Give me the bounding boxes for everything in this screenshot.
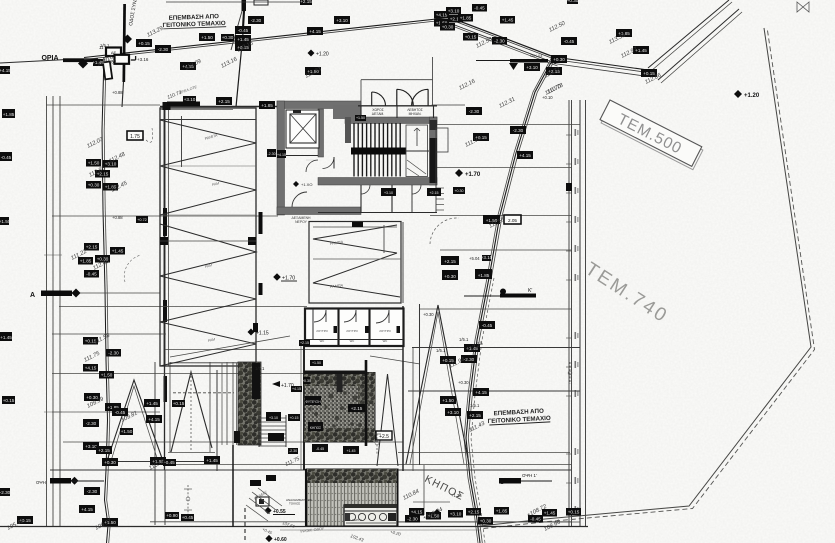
svg-text:1/5.1: 1/5.1	[255, 366, 265, 371]
svg-text:1/5.1: 1/5.1	[459, 337, 469, 342]
svg-text:+3.16: +3.16	[137, 57, 149, 62]
svg-text:+0.15: +0.15	[173, 401, 185, 406]
svg-text:-2.30: -2.30	[0, 490, 11, 495]
svg-text:+1.45: +1.45	[544, 511, 556, 516]
svg-text:+0.45: +0.45	[182, 515, 194, 520]
svg-text:Κ': Κ'	[528, 288, 532, 294]
svg-text:A: A	[30, 292, 35, 299]
svg-text:ΝΕΡΟΥ: ΝΕΡΟΥ	[295, 220, 307, 224]
svg-text:ΛΟΥΤΡΟ: ΛΟΥΤΡΟ	[316, 329, 328, 333]
svg-text:+2.15: +2.15	[351, 406, 363, 411]
svg-text:+1.70: +1.70	[465, 172, 481, 178]
svg-text:+0.30: +0.30	[553, 57, 565, 62]
svg-text:+1.45: +1.45	[112, 249, 124, 254]
svg-text:+1.15: +1.15	[256, 331, 269, 337]
svg-text:+0.30: +0.30	[454, 189, 463, 193]
svg-text:+0.15: +0.15	[568, 510, 580, 515]
svg-text:+2.15: +2.15	[444, 259, 456, 264]
svg-text:+3.10: +3.10	[85, 444, 97, 449]
svg-text:+4.15: +4.15	[292, 387, 301, 391]
svg-text:-0.45: -0.45	[164, 460, 175, 465]
svg-text:ΟΨΗ 1': ΟΨΗ 1'	[522, 473, 537, 478]
svg-text:+0.30: +0.30	[444, 274, 456, 279]
svg-text:+1.50: +1.50	[201, 35, 213, 40]
svg-text:+1.85: +1.85	[478, 273, 490, 278]
svg-text:-0.45: -0.45	[530, 517, 541, 522]
svg-text:-2.30: -2.30	[87, 489, 98, 494]
svg-text:+1.ΧΟ: +1.ΧΟ	[301, 182, 312, 187]
svg-text:+0.88: +0.88	[112, 90, 123, 95]
svg-text:+2.15: +2.15	[429, 191, 438, 195]
svg-text:+1.50: +1.50	[442, 398, 454, 403]
svg-text:ΛΟΥΤΡΟ: ΛΟΥΤΡΟ	[346, 329, 358, 333]
svg-text:+0.15: +0.15	[289, 416, 298, 420]
svg-text:+1.85: +1.85	[460, 16, 472, 21]
svg-text:+0.30: +0.30	[302, 379, 311, 383]
svg-text:ΟΨΗ: ΟΨΗ	[36, 480, 46, 485]
svg-text:2.05: 2.05	[508, 218, 517, 223]
svg-text:+3.10: +3.10	[447, 410, 459, 415]
svg-text:+0.30: +0.30	[442, 25, 454, 30]
svg-text:+1.45: +1.45	[146, 401, 158, 406]
svg-text:+3.10: +3.10	[450, 512, 462, 517]
svg-text:+1.50: +1.50	[312, 361, 321, 365]
svg-text:+2.5: +2.5	[379, 434, 389, 440]
svg-text:+4.15: +4.15	[148, 417, 160, 422]
svg-text:-2.30: -2.30	[108, 351, 119, 356]
svg-text:+4.15: +4.15	[436, 13, 448, 18]
svg-text:-0.45: -0.45	[474, 6, 485, 11]
svg-text:-0.45: -0.45	[86, 272, 97, 277]
svg-text:+3.10: +3.10	[184, 97, 196, 102]
svg-text:ΠΕΡΓΚ: ΠΕΡΓΚ	[352, 518, 363, 522]
svg-text:-2.30: -2.30	[267, 152, 275, 156]
svg-text:OPIA: OPIA	[41, 55, 58, 62]
svg-text:+0.30: +0.30	[480, 519, 492, 524]
svg-text:ΔΕΞΑΜ.: ΔΕΞΑΜ.	[372, 112, 384, 116]
svg-text:+0.30: +0.30	[88, 183, 100, 188]
svg-text:+1.50: +1.50	[0, 219, 11, 224]
svg-text:ΚΗΠΟΣ: ΚΗΠΟΣ	[310, 426, 321, 430]
svg-text:+2.15: +2.15	[218, 99, 230, 104]
svg-text:WC: WC	[350, 339, 355, 343]
svg-text:+0.72: +0.72	[137, 218, 147, 222]
svg-text:+1.85: +1.85	[496, 509, 508, 514]
svg-text:+2.15: +2.15	[300, 341, 309, 345]
svg-text:+4.15: +4.15	[519, 153, 531, 158]
svg-text:-0.45: -0.45	[1, 155, 12, 160]
svg-text:+0.30: +0.30	[423, 312, 434, 317]
svg-text:+1.20: +1.20	[316, 52, 329, 58]
svg-text:+4.15: +4.15	[309, 29, 321, 34]
svg-text:-2.30: -2.30	[469, 109, 480, 114]
svg-text:-2.30: -2.30	[251, 18, 262, 23]
svg-text:+1.50: +1.50	[356, 116, 365, 120]
svg-text:+1.45: +1.45	[346, 449, 355, 453]
svg-text:+1.45: +1.45	[0, 335, 12, 340]
svg-text:1/5.1: 1/5.1	[100, 43, 110, 48]
svg-text:-0.45: -0.45	[482, 323, 493, 328]
svg-text:+1.50: +1.50	[121, 429, 133, 434]
svg-text:+1.85: +1.85	[80, 259, 92, 264]
svg-text:-0.45: -0.45	[564, 39, 575, 44]
svg-text:+0.88: +0.88	[112, 215, 123, 220]
svg-text:+2.15: +2.15	[300, 0, 312, 4]
svg-text:-0.45: -0.45	[115, 410, 126, 415]
svg-text:+5.04: +5.04	[469, 256, 480, 261]
svg-text:+4.15: +4.15	[0, 68, 11, 73]
svg-text:+0.30: +0.30	[222, 35, 234, 40]
svg-text:+0.90: +0.90	[166, 513, 178, 518]
svg-text:+1.50: +1.50	[101, 373, 113, 378]
svg-text:+0.30: +0.30	[458, 380, 469, 385]
svg-text:+1.50: +1.50	[88, 161, 100, 166]
svg-text:+1.35: +1.35	[451, 493, 462, 498]
svg-text:+0.15: +0.15	[138, 41, 150, 46]
svg-text:+0.15: +0.15	[465, 35, 477, 40]
svg-text:-2.30: -2.30	[494, 39, 505, 44]
svg-text:ΜΗΧΑΝ.: ΜΗΧΑΝ.	[409, 112, 422, 116]
svg-text:+4.15: +4.15	[411, 510, 423, 515]
svg-text:+0.30: +0.30	[104, 460, 116, 465]
svg-text:-2.30: -2.30	[86, 421, 97, 426]
svg-text:+0.10: +0.10	[542, 95, 553, 100]
svg-text:ΤΟΙΧΟΣ: ΤΟΙΧΟΣ	[289, 502, 300, 506]
svg-text:-2.30: -2.30	[407, 517, 418, 522]
svg-text:+0.60: +0.60	[274, 537, 287, 543]
svg-text:+0.15: +0.15	[3, 398, 15, 403]
svg-text:1/5.1: 1/5.1	[470, 403, 480, 408]
svg-text:+4.15: +4.15	[277, 153, 286, 157]
svg-text:-0.45: -0.45	[316, 447, 324, 451]
svg-text:-2.30: -2.30	[289, 449, 297, 453]
svg-text:ΦΥΤΕΥΣΗ: ΦΥΤΕΥΣΗ	[305, 400, 321, 404]
svg-text:+2.15: +2.15	[468, 510, 480, 515]
svg-text:+4.15: +4.15	[85, 366, 97, 371]
svg-text:+2.15: +2.15	[86, 245, 98, 250]
svg-text:WC: WC	[383, 339, 388, 343]
svg-text:+1.45: +1.45	[502, 18, 514, 23]
svg-text:-2.30: -2.30	[513, 128, 524, 133]
svg-text:+3.10: +3.10	[448, 9, 460, 14]
svg-text:-0.45: -0.45	[238, 28, 249, 33]
svg-text:ΛΟΥΤΡΟ: ΛΟΥΤΡΟ	[379, 329, 391, 333]
svg-text:1/5.1: 1/5.1	[436, 348, 446, 353]
svg-text:+2.15: +2.15	[98, 448, 110, 453]
svg-text:-2.30: -2.30	[158, 47, 169, 52]
svg-text:+3.10: +3.10	[336, 18, 348, 23]
svg-text:+0.30: +0.30	[567, 0, 579, 3]
svg-text:+3.10: +3.10	[481, 255, 493, 260]
svg-text:+4.15: +4.15	[81, 507, 93, 512]
svg-text:WC: WC	[320, 339, 325, 343]
svg-text:+3.10: +3.10	[384, 191, 393, 195]
svg-text:+1.45: +1.45	[237, 37, 249, 42]
svg-text:+1.85: +1.85	[3, 112, 15, 117]
svg-text:ΟΙΚ.04: ΟΙΚ.04	[530, 53, 543, 58]
svg-text:+3.10: +3.10	[526, 65, 538, 70]
svg-text:+4.15: +4.15	[475, 390, 487, 395]
svg-text:1.75: 1.75	[130, 134, 140, 140]
svg-text:+3.10: +3.10	[269, 416, 278, 420]
svg-text:+1.45: +1.45	[206, 458, 218, 463]
svg-text:+2.15: +2.15	[469, 413, 481, 418]
svg-text:ΔΕ: ΔΕ	[111, 50, 117, 55]
svg-text:+1.85: +1.85	[261, 103, 273, 108]
svg-text:+1.20: +1.20	[744, 93, 760, 99]
